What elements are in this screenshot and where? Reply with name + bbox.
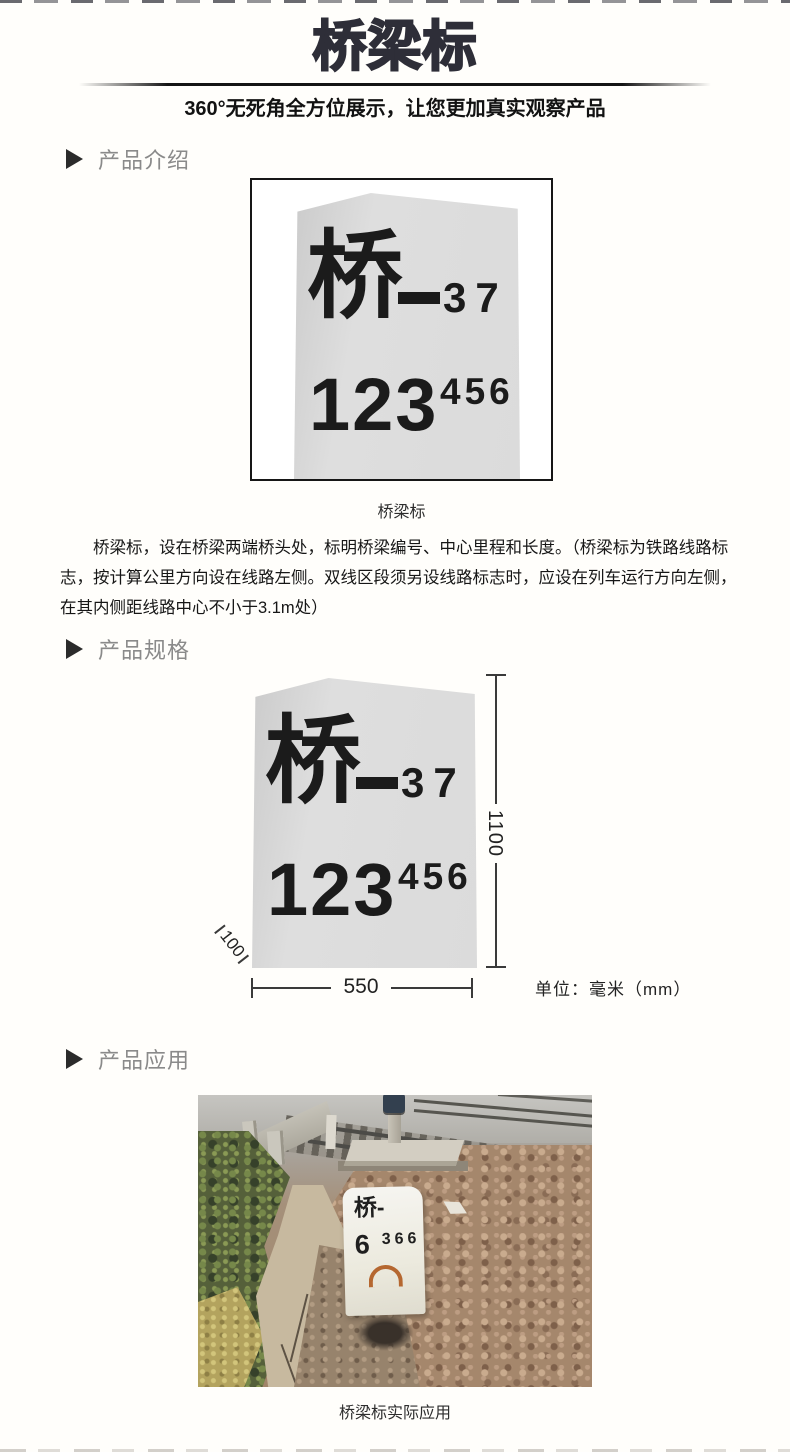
white-post (325, 1115, 336, 1149)
signal-pedestal (344, 1140, 464, 1166)
section-header-application: 产品应用 (66, 1043, 190, 1075)
base-offset-label: 100 (215, 927, 248, 962)
application-photo: 桥- 6 366 (198, 1095, 592, 1387)
bridge-marker-stone-photo: 桥- 6 366 (342, 1186, 425, 1316)
width-dimension-cap-left (251, 978, 253, 998)
height-dimension-label: 1100 (482, 804, 507, 863)
width-dimension-label: 550 (331, 975, 391, 999)
marker-serial: 37 (401, 762, 466, 804)
signal-head (383, 1095, 405, 1113)
marker-char: 桥 (265, 714, 361, 810)
application-photo-caption: 桥梁标实际应用 (198, 1399, 592, 1423)
height-dimension-cap-top (486, 674, 506, 676)
marker-mileage-sup: 456 (398, 858, 472, 895)
photo-stone-text-main: 6 (354, 1231, 370, 1258)
marker-dash: — (356, 777, 398, 789)
photo-stone-text-line1: 桥- (354, 1196, 385, 1220)
height-dimension-cap-bottom (486, 966, 506, 968)
arrow-right-icon (66, 1049, 83, 1069)
width-dimension-cap-right (471, 978, 473, 998)
photo-stone-text-sub: 366 (382, 1231, 421, 1248)
bridge-marker-spec-illustration: 桥 — 37 123 456 (252, 678, 477, 968)
product-detail-page: 桥梁标 360°无死角全方位展示，让您更加真实观察产品 产品介绍 桥 — 37 … (0, 0, 790, 1452)
dark-soil-patch (356, 1315, 414, 1351)
unit-note: 单位：毫米（mm） (535, 975, 691, 1000)
section-title-application: 产品应用 (98, 1043, 190, 1075)
marker-mileage-main: 123 (267, 853, 396, 927)
rust-stain (368, 1265, 403, 1288)
